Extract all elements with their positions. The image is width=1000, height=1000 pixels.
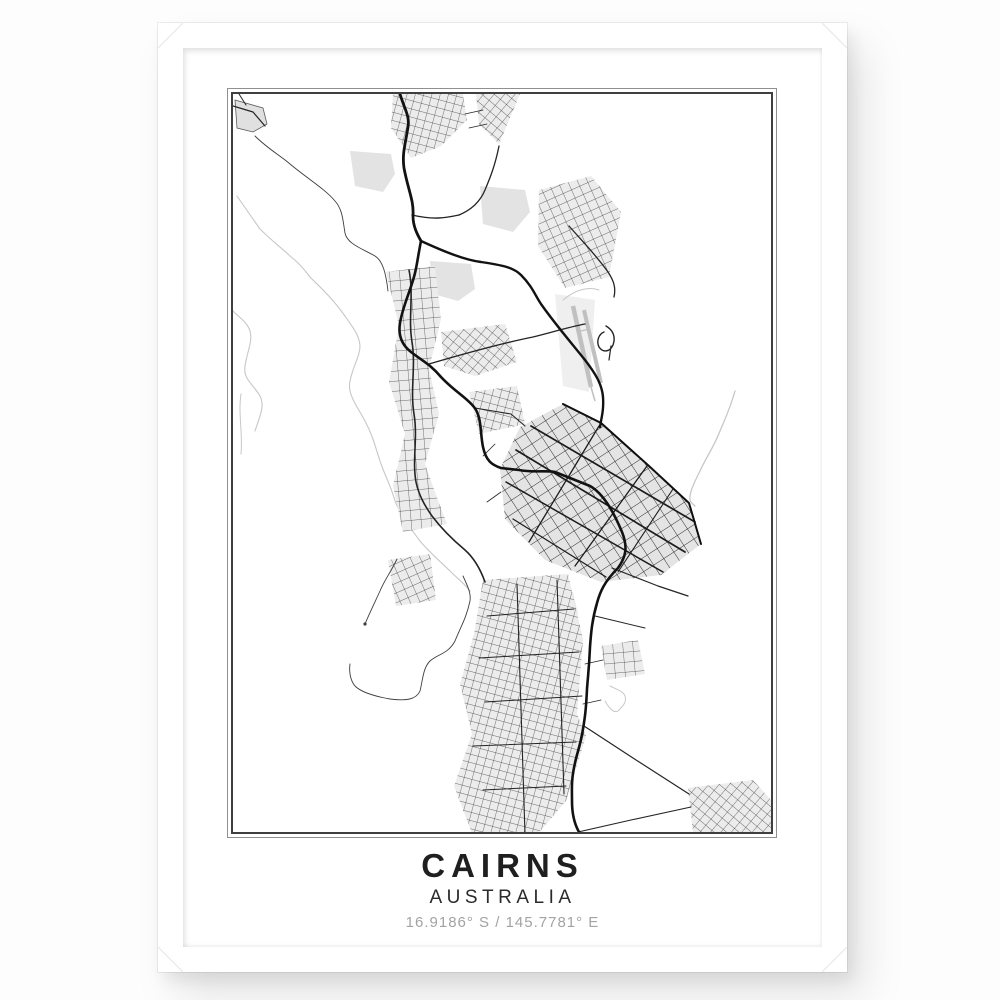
poster-caption: CAIRNS AUSTRALIA 16.9186° S / 145.7781° … — [183, 848, 822, 931]
map-plate-inner-border — [231, 92, 773, 834]
city-map-svg — [233, 94, 771, 832]
map-creeks — [255, 136, 470, 700]
frame-mitre-joint — [158, 23, 183, 48]
poster-mat: CAIRNS AUSTRALIA 16.9186° S / 145.7781° … — [183, 48, 822, 947]
poster-subtitle: AUSTRALIA — [183, 887, 822, 909]
frame-mitre-joint — [158, 947, 183, 972]
poster-title: CAIRNS — [183, 848, 822, 884]
poster-coordinates: 16.9186° S / 145.7781° E — [183, 914, 822, 931]
picture-frame: CAIRNS AUSTRALIA 16.9186° S / 145.7781° … — [158, 23, 847, 972]
frame-mitre-joint — [822, 23, 847, 48]
frame-mitre-joint — [822, 947, 847, 972]
map-plate — [227, 88, 777, 838]
